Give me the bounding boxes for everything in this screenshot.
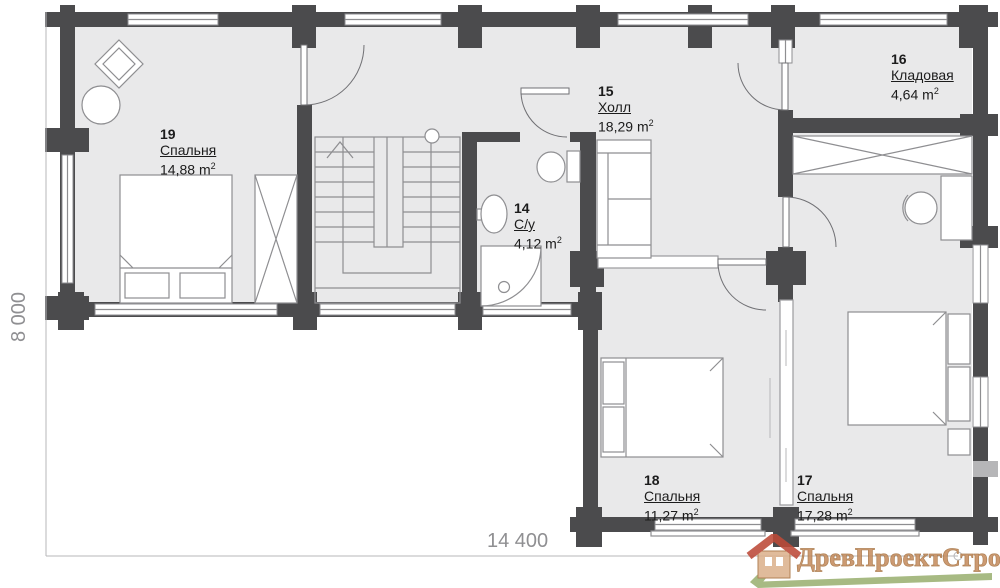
toilet-tank: [567, 151, 580, 182]
room-label-18: 18 Спальня 11,27 m2: [644, 472, 700, 524]
toilet-bowl: [537, 152, 565, 182]
hall-furniture: [597, 140, 651, 258]
dimension-height-label: 8 000: [8, 252, 31, 342]
shower-tray: [481, 246, 541, 306]
room-label-14: 14 С/у 4,12 m2: [514, 200, 562, 252]
pillow: [603, 407, 624, 452]
pillow: [948, 314, 970, 364]
nightstand: [948, 429, 970, 455]
room-label-16: 16 Кладовая 4,64 m2: [891, 51, 954, 103]
sink: [481, 195, 507, 233]
room-label-15: 15 Холл 18,29 m2: [598, 83, 654, 135]
room18-furniture: [601, 358, 723, 457]
desk: [941, 176, 972, 240]
round-table: [82, 86, 120, 124]
floor-plan-canvas: 19 Спальня 14,88 m2 14 С/у 4,12 m2 15 Хо…: [0, 0, 1000, 588]
stairs-post: [425, 129, 439, 143]
pillow: [125, 273, 169, 298]
room-label-17: 17 Спальня 17,28 m2: [797, 472, 853, 524]
pillow: [603, 362, 624, 404]
pillow: [948, 367, 970, 421]
dimension-width-label: 14 400: [487, 530, 548, 553]
bed-17: [848, 312, 946, 425]
watermark-text: ДревПроектСтрой: [797, 543, 1000, 573]
desk-chair: [905, 192, 937, 224]
pillow: [180, 273, 225, 298]
room-label-19: 19 Спальня 14,88 m2: [160, 126, 216, 178]
shower-drain: [499, 282, 510, 293]
watermark-logo: ДревПроектСтрой: [744, 534, 998, 588]
